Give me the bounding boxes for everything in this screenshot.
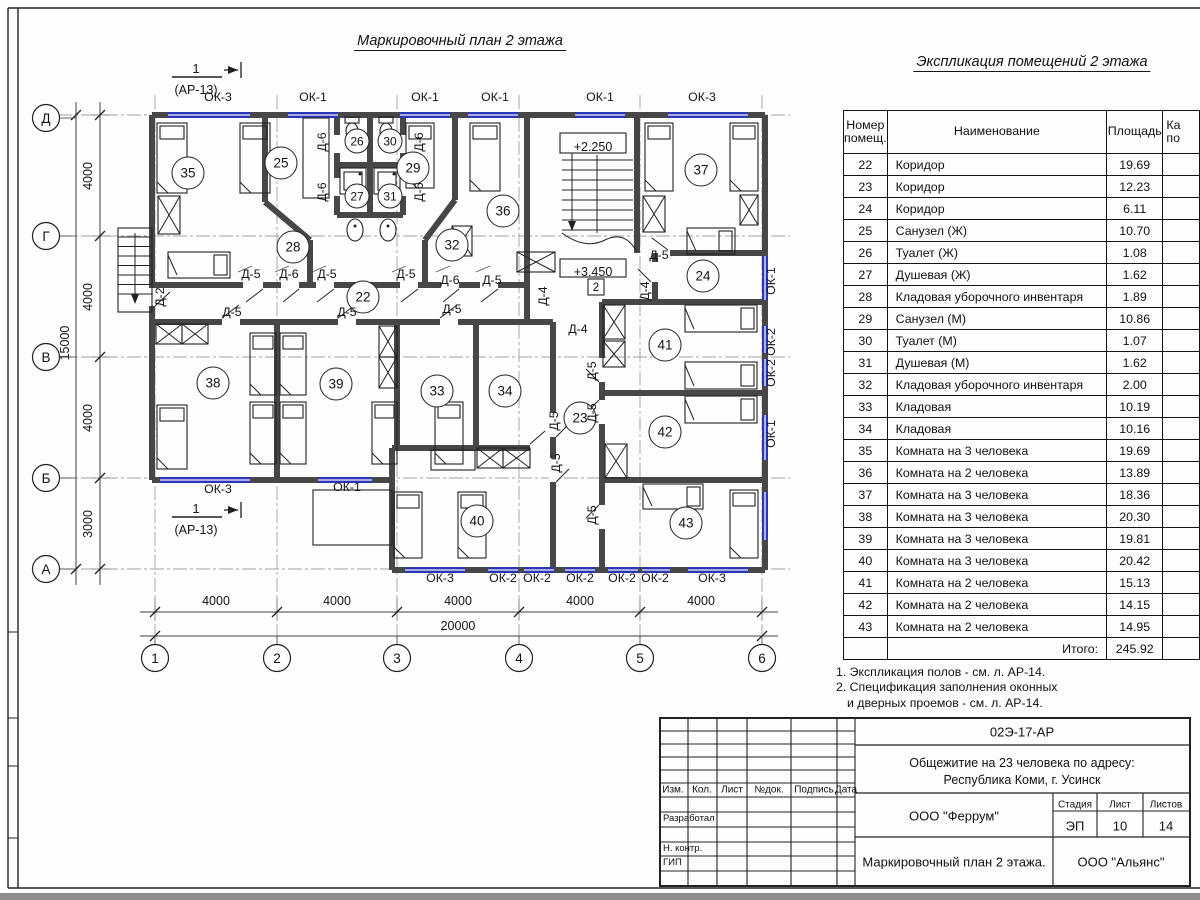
note-line: и дверных проемов - см. л. АР-14. — [847, 696, 1057, 711]
sheets-total: 14 — [1159, 819, 1173, 834]
bed-pillow — [253, 336, 273, 349]
bed-pillow — [473, 126, 497, 139]
bed-pillow — [160, 126, 184, 139]
room-number: 38 — [205, 376, 220, 391]
bed — [435, 402, 463, 464]
col-doc: №док. — [754, 785, 783, 796]
sheet-number: 10 — [1113, 819, 1127, 834]
table-row: 42Комната на 2 человека14.15 — [844, 594, 1200, 616]
washbasin-tap — [387, 225, 390, 228]
dim-label: 4000 — [81, 162, 95, 190]
table-row: 27Душевая (Ж)1.62 — [844, 264, 1200, 286]
door-label: Д-6 — [440, 273, 459, 287]
table-total-row: Итого:245.92 — [844, 638, 1200, 660]
customer-org: ООО "Альянс" — [1078, 855, 1165, 870]
role-developer: Разработал — [663, 813, 715, 824]
dim-label: 4000 — [81, 404, 95, 432]
project-address-line1: Общежитие на 23 человека по адресу: — [909, 756, 1134, 770]
door-opening — [333, 135, 343, 153]
bed-pillow — [719, 231, 732, 251]
door-opening — [598, 400, 608, 424]
axis-label: Д — [41, 111, 50, 126]
door-label: Д-5 — [442, 302, 461, 316]
drawing-sheet: { "titles": { "plan": "Маркировочный пла… — [0, 0, 1200, 900]
room-number: 37 — [693, 163, 708, 178]
bed-pillow — [741, 399, 754, 420]
window-label: ОК-2 — [641, 571, 669, 585]
axis-label: 6 — [758, 651, 766, 666]
washbasin — [347, 219, 363, 241]
door-leaf — [401, 289, 418, 302]
door-label: Д-5 — [482, 273, 501, 287]
bed-fold — [240, 182, 251, 193]
door-opening — [243, 280, 263, 290]
bed-pillow — [438, 405, 460, 418]
room-number: 39 — [328, 377, 343, 392]
window-label: ОК-2 — [764, 328, 778, 356]
table-row: 24Коридор6.11 — [844, 198, 1200, 220]
door-leaf — [317, 289, 334, 302]
thin-outline — [313, 490, 392, 545]
bed-fold — [645, 180, 656, 191]
axis-label: 1 — [151, 651, 159, 666]
room-number: 36 — [495, 204, 510, 219]
window-label: ОК-1 — [481, 90, 509, 104]
col-list: Лист — [721, 785, 743, 796]
bed — [157, 405, 187, 469]
col-izm: Изм. — [662, 785, 683, 796]
label-leader — [436, 266, 450, 272]
window-label: ОК-2 — [489, 571, 517, 585]
bed-pillow — [741, 365, 754, 386]
level-mark: +3.450 — [574, 265, 613, 279]
table-row: 35Комната на 3 человека19.69 — [844, 440, 1200, 462]
col-kol: Кол. — [692, 785, 712, 796]
window-label: ОК-2 — [523, 571, 551, 585]
section-number: 1 — [192, 501, 199, 516]
table-row: 29Санузел (М)10.86 — [844, 308, 1200, 330]
node-marker: 2 — [593, 282, 599, 294]
bed-fold — [157, 458, 168, 469]
door-label: Д-6 — [412, 132, 426, 151]
explication-title: Экспликация помещений 2 этажа — [913, 54, 1150, 72]
door-opening — [598, 505, 608, 529]
washbasin — [380, 219, 396, 241]
room-number: 29 — [405, 161, 420, 176]
dim-label: 4000 — [566, 594, 594, 608]
sheets-label: Листов — [1150, 800, 1183, 811]
window-label: ОК-1 — [299, 90, 327, 104]
door-label: Д-5 — [585, 505, 599, 524]
note-line: 2. Спецификация заполнения оконных — [836, 680, 1057, 695]
dim-label: 4000 — [323, 594, 351, 608]
sheet-label: Лист — [1109, 800, 1131, 811]
table-row: 26Туалет (Ж)1.08 — [844, 242, 1200, 264]
bed — [685, 305, 757, 332]
table-row: 32Кладовая уборочного инвентаря2.00 — [844, 374, 1200, 396]
door-leaf — [443, 289, 459, 302]
section-ref: (АР-13) — [174, 523, 217, 537]
section-number: 1 — [192, 61, 199, 76]
bed-fold — [250, 384, 261, 395]
bed-fold — [470, 180, 481, 191]
window-label: ОК-1 — [586, 90, 614, 104]
col-data: Дата — [835, 785, 857, 796]
door-leaf — [481, 289, 498, 302]
section-arrow-head — [228, 66, 238, 74]
section-arrow-head — [228, 506, 238, 514]
level-mark: +2.250 — [574, 140, 613, 154]
window-label: ОК-3 — [204, 90, 232, 104]
bed — [685, 396, 757, 423]
stage-value: ЭП — [1066, 819, 1085, 834]
axis-label: Г — [42, 229, 50, 244]
bed — [685, 362, 757, 389]
door-label: Д-4 — [568, 322, 587, 336]
design-org: ООО "Феррум" — [909, 809, 999, 824]
sheet-name: Маркировочный план 2 этажа. — [862, 855, 1045, 870]
bed — [645, 123, 673, 191]
bed-fold — [157, 182, 168, 193]
window-label: ОК-1 — [411, 90, 439, 104]
bed — [250, 402, 276, 464]
room-number: 30 — [383, 135, 397, 149]
door-leaf — [283, 289, 299, 302]
axis-label: А — [41, 562, 50, 577]
dim-label: 4000 — [444, 594, 472, 608]
room-number: 25 — [273, 156, 288, 171]
window-label: ОК-1 — [764, 267, 778, 295]
role-gip: ГИП — [663, 857, 682, 868]
bed — [470, 123, 500, 191]
door-opening — [651, 262, 661, 282]
bed — [280, 402, 306, 464]
room-number: 42 — [657, 425, 672, 440]
bed-fold — [250, 453, 261, 464]
bed — [168, 252, 230, 278]
table-row: 28Кладовая уборочного инвентаря1.89 — [844, 286, 1200, 308]
window-label: ОК-3 — [698, 571, 726, 585]
role-ncontrol: Н. контр. — [663, 843, 702, 854]
axis-label: 2 — [273, 651, 281, 666]
table-row: 34Кладовая10.16 — [844, 418, 1200, 440]
door-leaf — [530, 431, 545, 444]
bed-pillow — [648, 126, 670, 139]
note-line: 1. Экспликация полов - см. л. АР-14. — [836, 665, 1057, 680]
bed-pillow — [733, 493, 755, 506]
dim-total-label: 20000 — [441, 619, 476, 633]
bed — [394, 492, 422, 558]
bed-fold — [730, 180, 741, 191]
room-number: 32 — [444, 238, 459, 253]
door-label: Д-5 — [317, 267, 336, 281]
door-label: Д-5 — [585, 361, 599, 380]
window-label: ОК-3 — [204, 482, 232, 496]
room-number: 41 — [657, 338, 672, 353]
door-opening — [530, 443, 550, 453]
bed-fold — [687, 231, 696, 251]
dim-label: 3000 — [81, 510, 95, 538]
bed-fold — [458, 547, 469, 558]
axis-label: Б — [42, 471, 51, 486]
table-row: 39Комната на 3 человека19.81 — [844, 528, 1200, 550]
bed — [730, 123, 758, 191]
bed-pillow — [733, 126, 755, 139]
bed-pillow — [741, 308, 754, 329]
external-stair-arrow-head — [131, 294, 139, 304]
table-row: 30Туалет (М)1.07 — [844, 330, 1200, 352]
room-number: 27 — [350, 190, 364, 204]
axis-label: В — [41, 350, 50, 365]
bed-fold — [280, 453, 291, 464]
table-row: 25Санузел (Ж)10.70 — [844, 220, 1200, 242]
explication-table: Номерпомещ.НаименованиеПлощадьКапо22Кори… — [843, 110, 1200, 660]
thin-outline — [431, 450, 475, 470]
door-label: Д-6 — [315, 132, 329, 151]
bed-fold — [372, 453, 383, 464]
table-row: 43Комната на 2 человека14.95 — [844, 616, 1200, 638]
axis-label: 3 — [393, 651, 401, 666]
dim-label: 4000 — [202, 594, 230, 608]
project-address-line2: Республика Коми, г. Усинск — [944, 773, 1101, 787]
bed-fold — [730, 547, 741, 558]
door-opening — [400, 280, 418, 290]
axis-label: 4 — [515, 651, 523, 666]
door-label: Д-6 — [412, 182, 426, 201]
bed — [730, 490, 758, 558]
dim-label: 4000 — [81, 283, 95, 311]
bed-fold — [685, 308, 694, 329]
table-row: 41Комната на 2 человека15.13 — [844, 572, 1200, 594]
bed-fold — [280, 384, 291, 395]
shower-drain — [359, 173, 362, 176]
door-label: Д-5 — [337, 305, 356, 319]
washbasin-tap — [354, 225, 357, 228]
bed-pillow — [283, 405, 303, 418]
table-row: 40Комната на 3 человека20.42 — [844, 550, 1200, 572]
col-podpis: Подпись — [794, 785, 834, 796]
door-opening — [333, 178, 343, 196]
bed-fold — [435, 453, 446, 464]
plan-title: Маркировочный план 2 этажа — [354, 33, 566, 51]
room-number: 35 — [180, 166, 195, 181]
shower-drain — [393, 173, 396, 176]
bed-pillow — [253, 405, 273, 418]
door-label: Д-5 — [222, 305, 241, 319]
room-number: 43 — [678, 516, 693, 531]
window-label: ОК-2 — [608, 571, 636, 585]
door-label: Д-5 — [549, 453, 563, 472]
bed-pillow — [375, 405, 394, 418]
room-number: 33 — [429, 384, 444, 399]
dim-label: 4000 — [687, 594, 715, 608]
door-label: Д-4 — [536, 286, 550, 305]
bed-pillow — [283, 336, 303, 349]
doc-code: 02Э-17-АР — [990, 725, 1054, 740]
door-label: Д-2 — [153, 287, 167, 306]
sheet-notes: 1. Экспликация полов - см. л. АР-14. 2. … — [836, 665, 1057, 711]
door-opening — [281, 280, 299, 290]
room-number: 28 — [285, 240, 300, 255]
bed-pillow — [687, 487, 700, 506]
window-label: ОК-2 — [566, 571, 594, 585]
table-row: 33Кладовая10.19 — [844, 396, 1200, 418]
door-label: Д-6 — [315, 182, 329, 201]
room-number: 31 — [383, 190, 397, 204]
table-row: 37Комната на 3 человека18.36 — [844, 484, 1200, 506]
bed — [250, 333, 276, 395]
window-label: ОК-3 — [426, 571, 454, 585]
door-opening — [440, 317, 458, 327]
room-number: 22 — [355, 290, 370, 305]
bed-fold — [643, 487, 652, 506]
bed-fold — [168, 255, 177, 275]
axis-label: 5 — [636, 651, 644, 666]
window-label: ОК-1 — [333, 480, 361, 494]
stage-label: Стадия — [1058, 800, 1092, 811]
door-label: Д-4 — [638, 281, 652, 300]
room-number: 24 — [695, 269, 711, 284]
label-leader — [476, 266, 490, 272]
bed-fold — [685, 399, 694, 420]
door-label: Д-5 — [649, 248, 668, 262]
table-row: 38Комната на 3 человека20.30 — [844, 506, 1200, 528]
door-opening — [316, 280, 334, 290]
window-label: ОК-3 — [688, 90, 716, 104]
dim-total-label: 15000 — [58, 326, 72, 361]
door-label: Д-5 — [585, 403, 599, 422]
bed-fold — [685, 365, 694, 386]
bed-pillow — [160, 408, 184, 421]
bed — [280, 333, 306, 395]
room-number: 40 — [469, 514, 484, 529]
room-number: 34 — [497, 384, 513, 399]
table-row: 23Коридор12.23 — [844, 176, 1200, 198]
window-label: ОК-1 — [764, 420, 778, 448]
room-number: 26 — [350, 135, 364, 149]
table-row: 36Комната на 2 человека13.89 — [844, 462, 1200, 484]
table-row: 31Душевая (М)1.62 — [844, 352, 1200, 374]
bed-pillow — [397, 495, 419, 508]
bed-pillow — [214, 255, 227, 275]
bed-fold — [394, 547, 405, 558]
table-header-row: Номерпомещ.НаименованиеПлощадьКапо — [844, 111, 1200, 154]
window-label: ОК-2 — [764, 359, 778, 387]
door-label: Д-5 — [547, 411, 561, 430]
door-leaf — [246, 289, 263, 302]
screen-edge-strip — [0, 893, 1200, 900]
table-row: 22Коридор19.69 — [844, 154, 1200, 176]
